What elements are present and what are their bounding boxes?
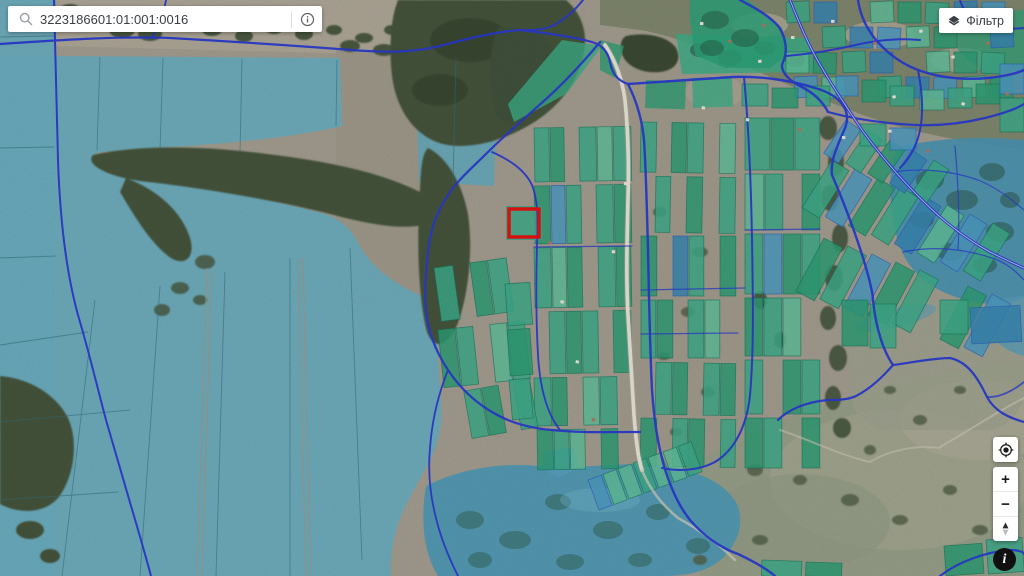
zoom-out-button[interactable]: − xyxy=(993,492,1018,516)
search-input[interactable] xyxy=(40,12,291,27)
grain-texture xyxy=(0,0,1024,576)
geolocate-button[interactable] xyxy=(993,437,1018,462)
zoom-in-button[interactable]: + xyxy=(993,467,1018,491)
geolocate-icon xyxy=(998,442,1014,458)
compass-button[interactable] xyxy=(993,517,1018,541)
satellite-map[interactable] xyxy=(0,0,1024,576)
filter-button[interactable]: Фільтр xyxy=(939,8,1013,33)
compass-icon xyxy=(1001,522,1010,536)
search-bar[interactable] xyxy=(8,6,322,32)
search-icon xyxy=(19,12,33,26)
filter-button-label: Фільтр xyxy=(966,14,1004,28)
map-viewport[interactable]: Фільтр + − i xyxy=(0,0,1024,576)
attribution-info-button[interactable]: i xyxy=(993,548,1016,571)
layers-icon xyxy=(948,15,960,27)
attribution-info-label: i xyxy=(1003,552,1007,568)
zoom-control-group: + − xyxy=(993,467,1018,541)
search-info-button[interactable] xyxy=(292,6,322,32)
